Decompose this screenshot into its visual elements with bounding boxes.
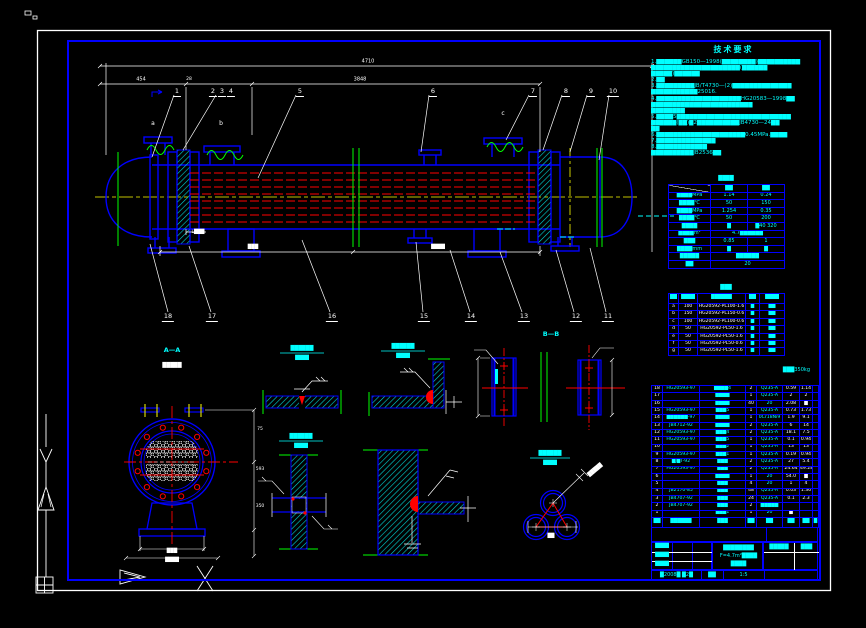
cell: 1.14	[800, 386, 813, 393]
cell: HG20593-97	[663, 437, 700, 444]
cell	[813, 451, 819, 458]
title-right-cell: █████	[764, 545, 794, 550]
cell: ████	[700, 393, 746, 400]
cell: HG20592-PL100-1.6	[698, 304, 746, 311]
cell: 200	[748, 215, 785, 223]
cell: 4	[800, 481, 813, 488]
cell: 100	[679, 304, 698, 311]
cell: a	[669, 304, 679, 311]
table-row: 15 HG20593-97 ███5 1 Q235-A 0.73 1.73	[652, 407, 819, 414]
cell: Q235-A	[757, 488, 783, 495]
cell: ████	[700, 422, 746, 429]
cell: 10	[652, 444, 663, 451]
aux-cyan-marks	[497, 216, 674, 237]
cell	[813, 459, 819, 466]
cell: ██	[760, 348, 785, 355]
cell: ███	[700, 517, 746, 527]
cell: 1	[746, 407, 757, 414]
cell: 14	[652, 415, 663, 422]
title-right-cell: ███	[794, 545, 819, 550]
cell: HG20592-PL50-1.6	[698, 326, 746, 333]
cell: HG20592-PL50-0.6	[698, 340, 746, 347]
cell: 1	[746, 393, 757, 400]
signature-cell: ████	[652, 545, 672, 550]
balloon-callout: 2	[209, 88, 217, 97]
balloon-callout: 8	[562, 88, 570, 97]
cell	[813, 415, 819, 422]
cell: ████MPa	[669, 207, 711, 215]
cell: 1	[652, 510, 663, 517]
cell: 5.4	[800, 459, 813, 466]
cell: 0.19	[783, 451, 800, 458]
cell	[783, 503, 800, 510]
cell: HG20592-PL150-0.6	[698, 311, 746, 318]
cell: HG20592-PL50-1.6	[698, 333, 746, 340]
balloon-callout: 13	[518, 313, 530, 322]
cell: Q235-A	[757, 393, 783, 400]
cell: 1	[746, 451, 757, 458]
cell: 0.35	[748, 207, 785, 215]
cell: ███	[700, 466, 746, 473]
cell: f	[669, 340, 679, 347]
balloon-callout: 7	[529, 88, 537, 97]
table-row: f 50 HG20592-PL50-0.6 █ ██	[669, 340, 785, 347]
cell: ██	[652, 517, 663, 527]
cell: 1.14	[711, 192, 748, 200]
nozzle-label-b: b	[219, 121, 223, 127]
table-row: 14 ██████-97 ████ 1 0Cr18Ni9 1.9 9.1	[652, 415, 819, 422]
cell: 54.0	[783, 473, 800, 480]
aa-dim-593: 593	[256, 468, 265, 473]
table-row: ████MPa1.140.24	[669, 192, 785, 200]
weld3-scale: ████	[294, 445, 308, 450]
cell: 1	[746, 444, 757, 451]
cell: 24.64	[783, 466, 800, 473]
cell: ███	[700, 488, 746, 495]
sheet-number: █2008█ █2█	[652, 573, 701, 578]
cell: JB4707-92	[663, 495, 700, 502]
cell: JB4707-92	[663, 503, 700, 510]
cell: ███	[700, 481, 746, 488]
cell: ██	[746, 517, 757, 527]
cell: █	[746, 318, 760, 325]
cell	[813, 510, 819, 517]
cell: █	[800, 400, 813, 407]
cell: 0.1	[783, 495, 800, 502]
bom-header-row: ██ ██████ ███ ██ ██ ██ ██ █	[652, 517, 819, 527]
cell: ████	[700, 473, 746, 480]
cell: 1.9	[783, 415, 800, 422]
title-block-wide-row	[651, 527, 818, 542]
cell: ██	[800, 517, 813, 527]
cell: 50	[679, 340, 698, 347]
cell	[663, 400, 700, 407]
cell: HG20593-97	[663, 429, 700, 436]
section-bb-view	[474, 345, 625, 430]
tube-lines	[190, 173, 538, 222]
table-row: ████℃50200	[669, 215, 785, 223]
cell: ██	[757, 517, 783, 527]
balloon-callout: 1	[173, 88, 181, 97]
cell: █	[711, 222, 748, 230]
nozzle-label-c: c	[501, 111, 504, 117]
cell	[813, 488, 819, 495]
cell: ████	[700, 400, 746, 407]
table-row: a 100 HG20592-PL100-1.6 █ ██	[669, 304, 785, 311]
title-block-right-cells: █████ ███	[763, 542, 818, 570]
parameter-table: ████ ████MPa1.140.24 ████℃50150 ████MPa1…	[668, 184, 785, 269]
weld1-title: ██████	[290, 347, 313, 352]
cell: █40 320	[748, 222, 785, 230]
cell: ██	[669, 294, 679, 304]
cell: ████mm	[669, 245, 711, 253]
cell: Q235-A	[757, 422, 783, 429]
cell: 0.24	[748, 192, 785, 200]
signature-cell: ████	[652, 563, 672, 568]
balloon-callout: 15	[418, 313, 430, 322]
table-row: 9 HG20593-97 ███1 1 Q235-A 0.19 0.94	[652, 451, 819, 458]
cell: 0Cr18Ni9	[757, 415, 783, 422]
cell: 2	[746, 466, 757, 473]
cell: 1	[783, 481, 800, 488]
balloon-callout: 11	[602, 313, 614, 322]
cell: ██	[748, 185, 785, 193]
cell	[813, 422, 819, 429]
cell	[669, 185, 711, 193]
cell: HG20593-97	[663, 407, 700, 414]
cell: 14	[800, 422, 813, 429]
table-row: 5 ███ 4 20 1 4	[652, 481, 819, 488]
cell	[813, 481, 819, 488]
table-row: 6 ████ 1 20 54.0 █	[652, 473, 819, 480]
cell: █	[746, 311, 760, 318]
cell	[813, 386, 819, 393]
cell	[800, 503, 813, 510]
cell: 18.1	[783, 429, 800, 436]
signature-cell: ████	[652, 554, 672, 559]
cell: ██	[760, 340, 785, 347]
cell: 6	[783, 422, 800, 429]
weight-note: ███350kg	[700, 367, 810, 373]
cell	[813, 466, 819, 473]
cell: 5	[652, 481, 663, 488]
cell: 2	[746, 459, 757, 466]
cell: ██	[760, 333, 785, 340]
balloon-callout: 6	[429, 88, 437, 97]
cell	[813, 407, 819, 414]
cell: █J█T-92	[663, 459, 700, 466]
cell: ████	[700, 415, 746, 422]
cell: 20	[711, 260, 785, 268]
cell: 50	[711, 200, 748, 208]
cell: 13	[652, 422, 663, 429]
cell: 50	[711, 215, 748, 223]
cell: ██	[783, 517, 800, 527]
cell: e	[669, 333, 679, 340]
table-row: d 50 HG20592-PL50-1.6 █ ██	[669, 326, 785, 333]
dim-block-2: ████	[431, 246, 445, 251]
cell: 4.7██████	[711, 230, 785, 238]
cell: 1	[746, 415, 757, 422]
cell: ██████-97	[663, 415, 700, 422]
table-row: 3 JB4707-92 ███ 24 Q235-A 0.1 2.3	[652, 495, 819, 502]
balloon-callout: 17	[206, 313, 218, 322]
cell: 1	[746, 510, 757, 517]
cell	[813, 444, 819, 451]
cell: 20	[757, 510, 783, 517]
cell: █	[746, 348, 760, 355]
cell: ███5	[700, 407, 746, 414]
cell: 20	[757, 473, 783, 480]
cell: d	[669, 326, 679, 333]
section-aa-subtitle: █████	[162, 364, 181, 369]
tech-req-line: ██████████JB2536██	[651, 150, 816, 156]
cell: ███2	[700, 444, 746, 451]
cell: █	[746, 326, 760, 333]
parameter-table-title: ████	[690, 177, 762, 182]
cell: 0.1	[783, 437, 800, 444]
table-row: ██20	[669, 260, 785, 268]
balloon-callout: 3	[218, 88, 226, 97]
table-row: 8 █J█T-92 ███ 2 Q235-A 27 5.4	[652, 459, 819, 466]
cell: 100	[679, 318, 698, 325]
technical-requirements: 技术要求 1.██████GB150—1998(████████)███████…	[651, 44, 816, 157]
tech-req-line: 4.████████████████████HG20583—1998██	[651, 96, 816, 102]
cell: ██	[746, 294, 760, 304]
weld2-scale: ████	[396, 355, 410, 360]
table-row: ███████████	[669, 253, 785, 261]
cell	[800, 510, 813, 517]
tube-detail-dim: ██	[548, 535, 555, 540]
cell: HG20592-PL100-0.6	[698, 318, 746, 325]
nozzle-label-a: a	[151, 121, 155, 127]
table-row: ███0.851	[669, 238, 785, 246]
aa-dim-bottom2: ████	[165, 559, 179, 564]
cell: 2	[746, 503, 757, 510]
cell: 2	[800, 393, 813, 400]
table-row: 17 ████ 1 Q235-A 2 2	[652, 393, 819, 400]
table-header-row: ██ ████ ██████ ██ ████	[669, 294, 785, 304]
cell: Q235-A	[757, 407, 783, 414]
cell: 2	[746, 429, 757, 436]
nozzle-table-title: ███	[690, 286, 762, 291]
table-row: 7 HG20593-97 ███ 2 Q235-A 24.64 49.28	[652, 466, 819, 473]
cell: 1.36	[800, 488, 813, 495]
cell: 2	[652, 503, 663, 510]
cell: Q235-A	[757, 451, 783, 458]
cell: JB4712-92	[663, 422, 700, 429]
cell: 2	[783, 393, 800, 400]
cell: 1	[746, 437, 757, 444]
aa-dim-75: 75	[257, 428, 263, 433]
tube-pitch-detail	[524, 458, 589, 540]
cell: 0.03	[783, 488, 800, 495]
cell: 150	[679, 311, 698, 318]
cell: █████	[669, 253, 711, 261]
table-row: 13 JB4712-92 ████ 2 Q235-A 6 14	[652, 422, 819, 429]
table-row: 4 JB2170-85 ███ 48 Q235-A 0.03 1.36	[652, 488, 819, 495]
balloon-callout: 9	[587, 88, 595, 97]
cell: ████MPa	[669, 192, 711, 200]
cell: 17	[652, 393, 663, 400]
dim-seg1: 454	[136, 78, 146, 83]
cell: ███1	[700, 451, 746, 458]
cell: 7.5	[800, 429, 813, 436]
cell: █	[746, 304, 760, 311]
cell: HG20593-97	[663, 451, 700, 458]
dim-block-1: ███	[248, 246, 258, 251]
table-row: ████mm██	[669, 245, 785, 253]
cell: ███	[700, 495, 746, 502]
drawing-name-line: ████████	[713, 546, 764, 551]
cell: HG20592-PL50-1.6	[698, 348, 746, 355]
cell: ███4	[700, 429, 746, 436]
cell	[663, 444, 700, 451]
cell: █	[783, 510, 800, 517]
weight-cell: ██	[701, 573, 723, 578]
cell: 8	[652, 459, 663, 466]
cell: Q235-A	[757, 429, 783, 436]
cell: 20	[757, 400, 783, 407]
cell: 12	[652, 429, 663, 436]
cell: 2.3	[800, 495, 813, 502]
cell	[813, 393, 819, 400]
cell: 4	[652, 488, 663, 495]
cell: ██	[760, 311, 785, 318]
title-block: ████ ████ ████ ████████ F=4.7m²████ ████…	[651, 527, 818, 580]
cell: c	[669, 318, 679, 325]
cell: 9.1	[800, 415, 813, 422]
cell: b	[669, 311, 679, 318]
tube-detail-title: ██████	[538, 452, 561, 457]
balloon-callout: 4	[227, 88, 235, 97]
cell: g	[669, 348, 679, 355]
cell: ██████	[663, 517, 700, 527]
table-row: ████	[669, 185, 785, 193]
cell: 50	[679, 326, 698, 333]
table-row: 1 ███1 1 20 █	[652, 510, 819, 517]
balloon-callout: 12	[570, 313, 582, 322]
nozzle-table: ██ ████ ██████ ██ ████ a 100 HG20592-PL1…	[668, 293, 785, 356]
table-row: 2 JB4707-92 ███ 2 █████	[652, 503, 819, 510]
cell: 1.254	[711, 207, 748, 215]
aa-dim-bottom1: ███	[167, 550, 177, 555]
cell: 4	[746, 481, 757, 488]
cell: 48	[746, 488, 757, 495]
title-block-drawing-name: ████████ F=4.7m²████ ████	[712, 542, 763, 570]
balloon-callout: 5	[296, 88, 304, 97]
cell: ████m²	[669, 230, 711, 238]
cell: 2	[746, 422, 757, 429]
cell: ██	[760, 304, 785, 311]
aa-dim-350: 350	[256, 505, 265, 510]
dim-l-label: L███	[192, 231, 205, 236]
weld-detail-1	[263, 353, 341, 414]
drawing-name-line: ████	[713, 562, 764, 567]
cell: █	[746, 333, 760, 340]
cell: 16	[652, 400, 663, 407]
cell: ██	[760, 318, 785, 325]
cell: 20	[757, 481, 783, 488]
table-row: 11 HG20593-97 ███5 1 Q235-A 0.1 0.94	[652, 437, 819, 444]
cell: █	[813, 517, 819, 527]
table-row: b 150 HG20592-PL150-0.6 █ ██	[669, 311, 785, 318]
cell: 0.85	[711, 238, 748, 246]
title-block-signature-grid: ████ ████ ████	[651, 542, 712, 570]
cell	[813, 400, 819, 407]
dim-seg2: 28	[186, 78, 192, 83]
balloon-callout: 16	[326, 313, 338, 322]
cell: 50	[679, 333, 698, 340]
cell: 50	[679, 348, 698, 355]
cell: 1	[748, 238, 785, 246]
cell: Q235-A	[757, 444, 783, 451]
cell: ████℃	[669, 200, 711, 208]
cell: ████4	[700, 386, 746, 393]
table-row: e 50 HG20592-PL50-1.6 █ ██	[669, 333, 785, 340]
weld3-title: ██████	[289, 435, 312, 440]
drawing-name-line: F=4.7m²████	[713, 554, 764, 559]
cell: 2.08	[783, 400, 800, 407]
cell: Q235-A	[757, 466, 783, 473]
cell: █	[711, 245, 748, 253]
tube-detail-scale: ████	[543, 462, 557, 467]
title-block-bottom-row: █2008█ █2█ ██ 1:5	[651, 570, 818, 580]
balloon-callout: 14	[465, 313, 477, 322]
cell: ████	[669, 222, 711, 230]
section-aa-title: A—A	[164, 347, 181, 354]
weld1-scale: ████	[295, 357, 309, 362]
weld-detail-2	[369, 351, 462, 416]
cell: Q235-A	[757, 437, 783, 444]
table-row: 16 ████ 40 20 2.08 █	[652, 400, 819, 407]
cell: █	[746, 340, 760, 347]
weld2-title: ██████	[391, 345, 414, 350]
cell: 150	[748, 200, 785, 208]
bom-table: 18 HG20593-97 ████4 2 Q235-A 0.59 1.14 1…	[651, 385, 819, 528]
cell: ████	[760, 294, 785, 304]
table-row: ████℃50150	[669, 200, 785, 208]
cell	[663, 393, 700, 400]
cell: ██	[711, 185, 748, 193]
cell: ██████	[711, 253, 785, 261]
cell: 24	[746, 495, 757, 502]
cell: ████	[679, 294, 698, 304]
table-row: 18 HG20593-97 ████4 2 Q235-A 0.59 1.14	[652, 386, 819, 393]
cell: ███1	[700, 510, 746, 517]
cell	[813, 503, 819, 510]
dim-overall-length: 4710	[362, 60, 375, 65]
cell: ███5	[700, 437, 746, 444]
cell: █	[748, 245, 785, 253]
cell: ████℃	[669, 215, 711, 223]
table-row: ██████40 320	[669, 222, 785, 230]
cell	[813, 473, 819, 480]
balloon-callout: 10	[607, 88, 619, 97]
weld-detail-3	[258, 441, 338, 549]
cell: 9	[652, 451, 663, 458]
cell: 0.94	[800, 451, 813, 458]
cad-drawing-canvas[interactable]: 12345678910 1817161514131211 4710 454 28…	[0, 0, 866, 628]
table-row: 10 ███2 1 Q235-A 13 13	[652, 444, 819, 451]
cell: Q235-A	[757, 495, 783, 502]
weld-detail-4	[363, 450, 476, 555]
cell: 2	[746, 386, 757, 393]
cell	[813, 429, 819, 436]
cell: HG20593-97	[663, 386, 700, 393]
cell: ███	[700, 503, 746, 510]
cell: ██████	[698, 294, 746, 304]
